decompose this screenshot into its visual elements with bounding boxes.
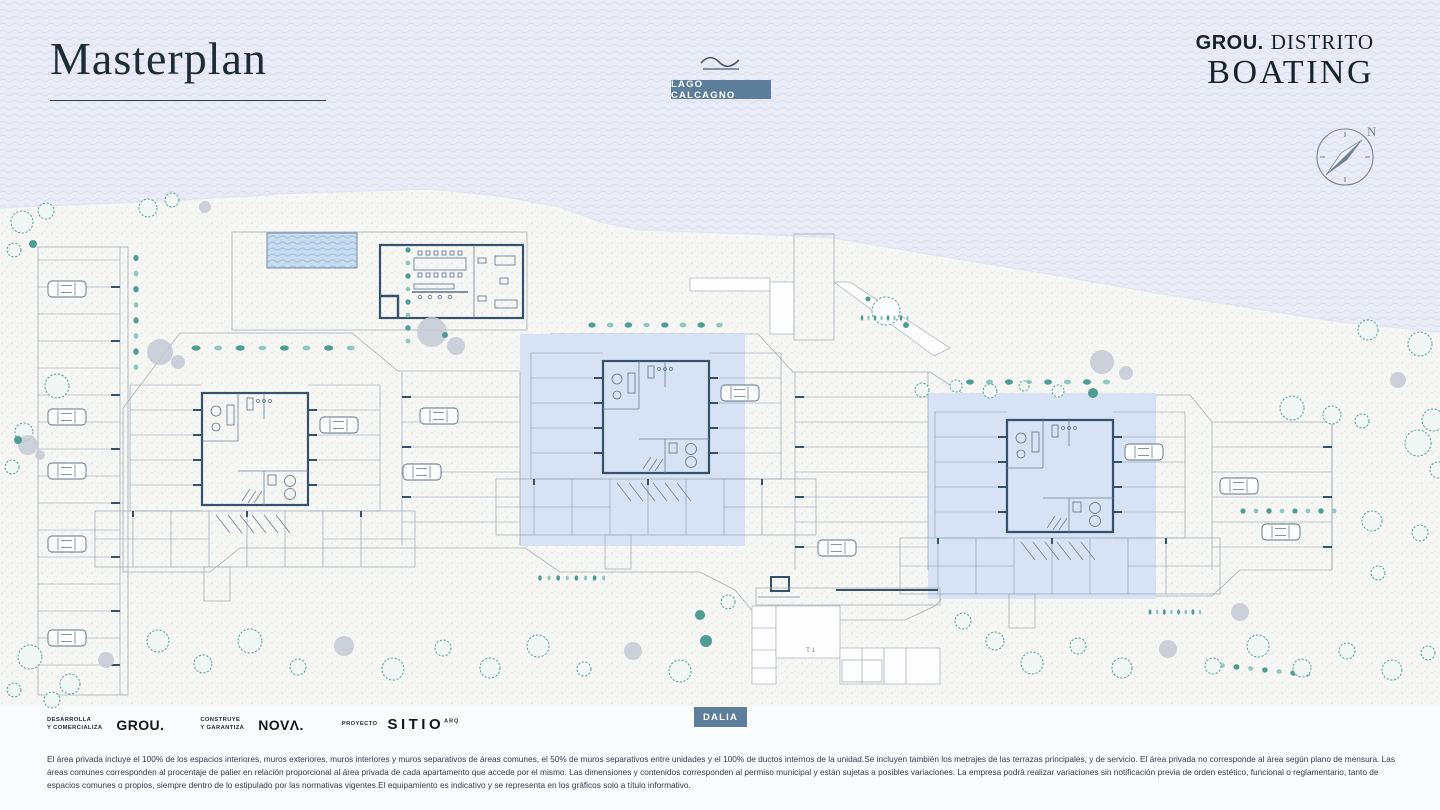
title-underline bbox=[50, 100, 326, 101]
lake-wave-icon bbox=[699, 54, 743, 72]
partner-logo-nova: NOVΛ. bbox=[258, 717, 304, 733]
brand-distrito: DISTRITO bbox=[1271, 30, 1374, 55]
partner-logos: DESARROLLA Y COMERCIALIZA GROU. CONSTRUY… bbox=[47, 716, 459, 734]
site-plan: T 1 bbox=[0, 0, 1440, 810]
brand-logo: GROU. DISTRITO BOATING bbox=[1196, 30, 1374, 91]
partner-logo-grou: GROU. bbox=[116, 717, 164, 733]
partner-logo-sitio: SITIOARQ bbox=[387, 716, 459, 734]
page-title: Masterplan bbox=[50, 34, 267, 85]
brand-grou: GROU. bbox=[1196, 32, 1264, 55]
partner-role: PROYECTO bbox=[342, 721, 378, 729]
legal-disclaimer: El área privada incluye el 100% de los e… bbox=[47, 753, 1400, 792]
lake-badge: LAGO CALCAGNO bbox=[671, 80, 771, 99]
pool bbox=[267, 233, 357, 268]
masterplan-page: T 1 bbox=[0, 0, 1440, 810]
building-c-highlight bbox=[928, 393, 1156, 599]
dalia-badge: DALIA bbox=[694, 707, 747, 727]
compass-north-label: N bbox=[1367, 124, 1377, 139]
dock-label: T 1 bbox=[806, 647, 816, 654]
partner-role: CONSTRUYE Y GARANTIZA bbox=[200, 717, 244, 732]
brand-boating: BOATING bbox=[1196, 55, 1374, 91]
partner-role: DESARROLLA Y COMERCIALIZA bbox=[47, 717, 102, 732]
building-b-highlight bbox=[520, 334, 745, 546]
